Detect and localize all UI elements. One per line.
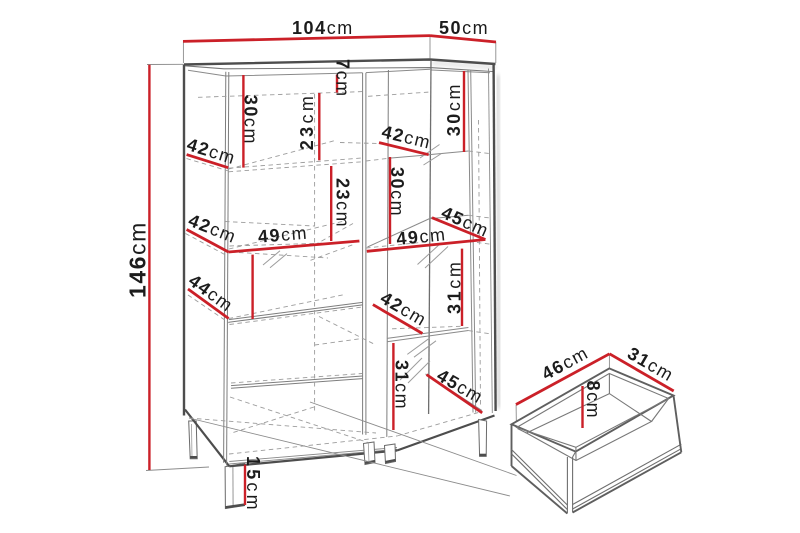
svg-text:30cm: 30cm bbox=[444, 82, 464, 136]
svg-text:30cm: 30cm bbox=[387, 167, 407, 217]
svg-text:30cm: 30cm bbox=[240, 95, 260, 145]
svg-text:42cm: 42cm bbox=[186, 210, 240, 247]
svg-text:23cm: 23cm bbox=[333, 178, 353, 228]
svg-text:31cm: 31cm bbox=[392, 360, 412, 410]
svg-text:15cm: 15cm bbox=[243, 456, 263, 513]
svg-text:31cm: 31cm bbox=[445, 260, 465, 314]
svg-text:50cm: 50cm bbox=[439, 18, 489, 38]
svg-text:45cm: 45cm bbox=[434, 365, 488, 407]
svg-text:8cm: 8cm bbox=[583, 381, 603, 420]
svg-text:7cm: 7cm bbox=[333, 59, 353, 98]
svg-text:23cm: 23cm bbox=[297, 93, 317, 151]
svg-text:49cm: 49cm bbox=[257, 223, 309, 247]
svg-text:146cm: 146cm bbox=[125, 221, 151, 298]
svg-text:104cm: 104cm bbox=[292, 18, 354, 38]
